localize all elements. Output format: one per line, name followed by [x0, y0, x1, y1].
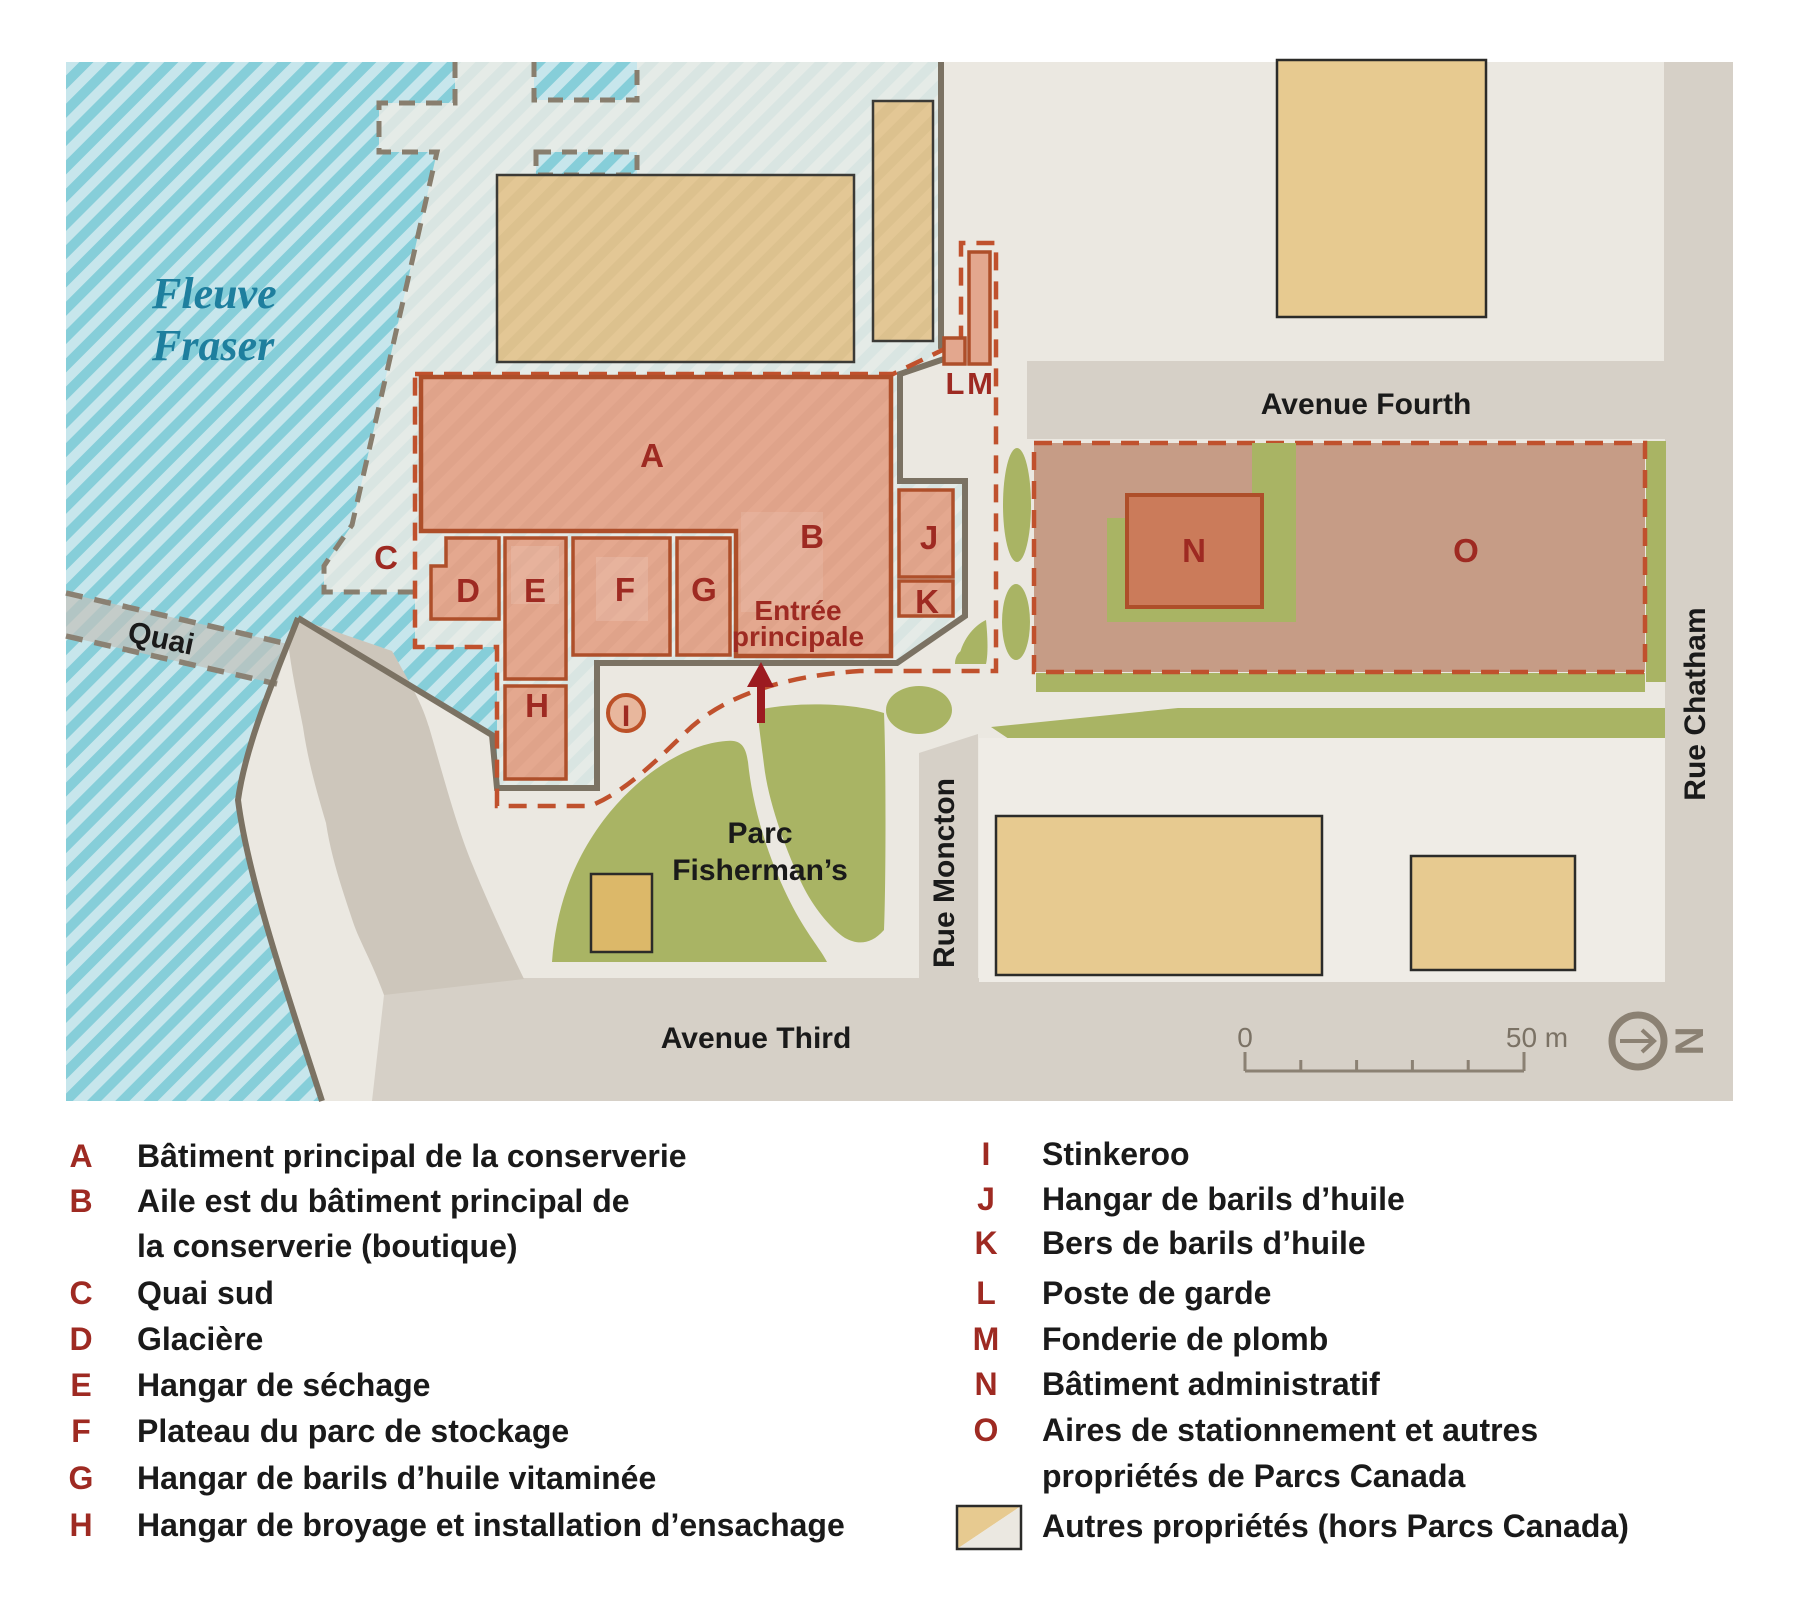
svg-text:Avenue Fourth: Avenue Fourth	[1261, 388, 1472, 421]
svg-text:Quai sud: Quai sud	[137, 1275, 274, 1311]
svg-text:C: C	[69, 1275, 92, 1311]
svg-text:Bâtiment principal de la conse: Bâtiment principal de la conserverie	[137, 1138, 687, 1174]
svg-text:F: F	[71, 1413, 91, 1449]
svg-text:propriétés de Parcs Canada: propriétés de Parcs Canada	[1042, 1458, 1465, 1494]
svg-text:M: M	[967, 366, 993, 401]
svg-text:A: A	[640, 437, 664, 474]
svg-text:N: N	[974, 1366, 997, 1402]
svg-text:I: I	[622, 700, 630, 733]
svg-text:E: E	[524, 572, 546, 609]
svg-text:50 m: 50 m	[1506, 1022, 1568, 1053]
svg-text:I: I	[982, 1136, 991, 1172]
svg-text:Rue Moncton: Rue Moncton	[928, 778, 961, 968]
svg-text:Bâtiment administratif: Bâtiment administratif	[1042, 1366, 1380, 1402]
svg-text:J: J	[920, 519, 938, 556]
svg-text:Aires de stationnement et autr: Aires de stationnement et autres	[1042, 1412, 1538, 1448]
svg-text:A: A	[69, 1138, 92, 1174]
svg-text:Hangar de barils d’huile: Hangar de barils d’huile	[1042, 1181, 1405, 1217]
svg-text:Aile est du bâtiment principal: Aile est du bâtiment principal de	[137, 1183, 630, 1219]
svg-text:Hangar de barils d’huile vitam: Hangar de barils d’huile vitaminée	[137, 1460, 656, 1496]
svg-text:H: H	[525, 687, 549, 724]
svg-text:Rue Chatham: Rue Chatham	[1679, 607, 1712, 800]
svg-text:la conserverie (boutique): la conserverie (boutique)	[137, 1228, 518, 1264]
svg-text:N: N	[1182, 532, 1206, 569]
svg-text:D: D	[69, 1321, 92, 1357]
svg-text:O: O	[974, 1412, 999, 1448]
svg-text:G: G	[69, 1460, 94, 1496]
svg-text:Poste de garde: Poste de garde	[1042, 1275, 1271, 1311]
svg-text:Fraser: Fraser	[151, 321, 275, 370]
svg-text:Avenue Third: Avenue Third	[661, 1022, 852, 1055]
svg-text:L: L	[946, 366, 965, 401]
svg-text:Fisherman’s: Fisherman’s	[672, 854, 848, 887]
svg-text:Hangar de séchage: Hangar de séchage	[137, 1367, 430, 1403]
svg-text:K: K	[974, 1225, 997, 1261]
svg-text:J: J	[977, 1181, 995, 1217]
svg-text:Stinkeroo: Stinkeroo	[1042, 1136, 1190, 1172]
svg-text:Plateau du parc de stockage: Plateau du parc de stockage	[137, 1413, 569, 1449]
svg-text:F: F	[615, 571, 635, 608]
svg-text:Autres propriétés (hors Parcs: Autres propriétés (hors Parcs Canada)	[1042, 1508, 1629, 1544]
svg-text:G: G	[691, 571, 717, 608]
svg-text:C: C	[374, 539, 398, 576]
svg-text:N: N	[1666, 1027, 1710, 1056]
svg-text:Parc: Parc	[727, 817, 792, 850]
svg-text:B: B	[69, 1183, 92, 1219]
svg-text:D: D	[456, 572, 480, 609]
svg-text:B: B	[800, 518, 824, 555]
svg-text:Glacière: Glacière	[137, 1321, 263, 1357]
svg-text:E: E	[70, 1367, 91, 1403]
svg-text:Bers de barils d’huile: Bers de barils d’huile	[1042, 1225, 1366, 1261]
svg-text:K: K	[915, 583, 939, 620]
svg-text:Fonderie de plomb: Fonderie de plomb	[1042, 1321, 1328, 1357]
svg-text:0: 0	[1237, 1022, 1253, 1053]
svg-text:M: M	[973, 1321, 1000, 1357]
svg-text:Hangar de broyage et installat: Hangar de broyage et installation d’ensa…	[137, 1507, 845, 1543]
svg-text:Fleuve: Fleuve	[151, 269, 277, 318]
svg-text:principale: principale	[732, 621, 864, 652]
svg-text:O: O	[1453, 532, 1479, 569]
svg-text:H: H	[69, 1507, 92, 1543]
svg-text:L: L	[976, 1275, 996, 1311]
